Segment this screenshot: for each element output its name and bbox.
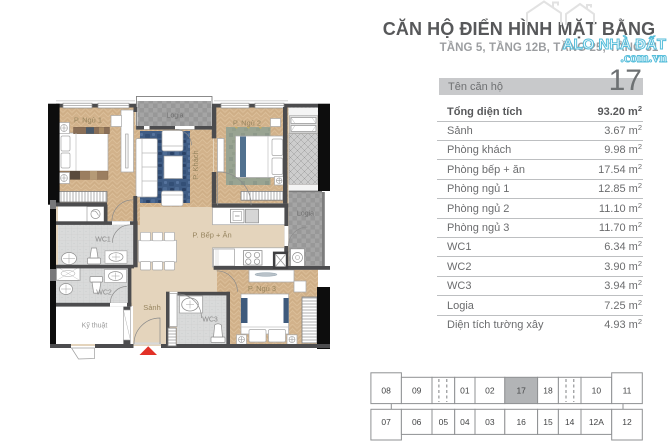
svg-text:WC2: WC2	[96, 290, 112, 297]
svg-text:P. Bếp + Ăn: P. Bếp + Ăn	[192, 231, 231, 240]
svg-text:12A: 12A	[589, 417, 604, 427]
svg-text:18: 18	[543, 385, 553, 395]
svg-text:01: 01	[460, 385, 470, 395]
svg-text:07: 07	[381, 417, 391, 427]
svg-text:09: 09	[412, 385, 422, 395]
svg-text:17: 17	[516, 385, 526, 395]
svg-text:08: 08	[381, 385, 391, 395]
svg-text:P. Ngủ 3: P. Ngủ 3	[248, 284, 276, 293]
svg-text:02: 02	[485, 385, 495, 395]
svg-text:Logia: Logia	[166, 113, 183, 120]
svg-text:WC3: WC3	[202, 317, 218, 324]
svg-text:WC1: WC1	[95, 237, 111, 244]
svg-text:03: 03	[485, 417, 495, 427]
svg-text:05: 05	[439, 417, 449, 427]
svg-text:16: 16	[516, 417, 526, 427]
svg-text:06: 06	[412, 417, 422, 427]
svg-text:04: 04	[460, 417, 470, 427]
svg-text:11: 11	[623, 385, 632, 395]
svg-text:P. Ngủ 2: P. Ngủ 2	[233, 119, 261, 128]
svg-text:14: 14	[565, 417, 575, 427]
svg-text:15: 15	[543, 417, 553, 427]
svg-text:12: 12	[622, 417, 632, 427]
svg-text:P. Khách: P. Khách	[191, 150, 200, 179]
svg-text:10: 10	[592, 385, 602, 395]
svg-text:Logia: Logia	[297, 211, 314, 218]
svg-text:P. Ngủ 1: P. Ngủ 1	[74, 116, 102, 125]
svg-text:Kỹ thuật: Kỹ thuật	[82, 323, 108, 330]
svg-text:Sảnh: Sảnh	[143, 303, 161, 312]
